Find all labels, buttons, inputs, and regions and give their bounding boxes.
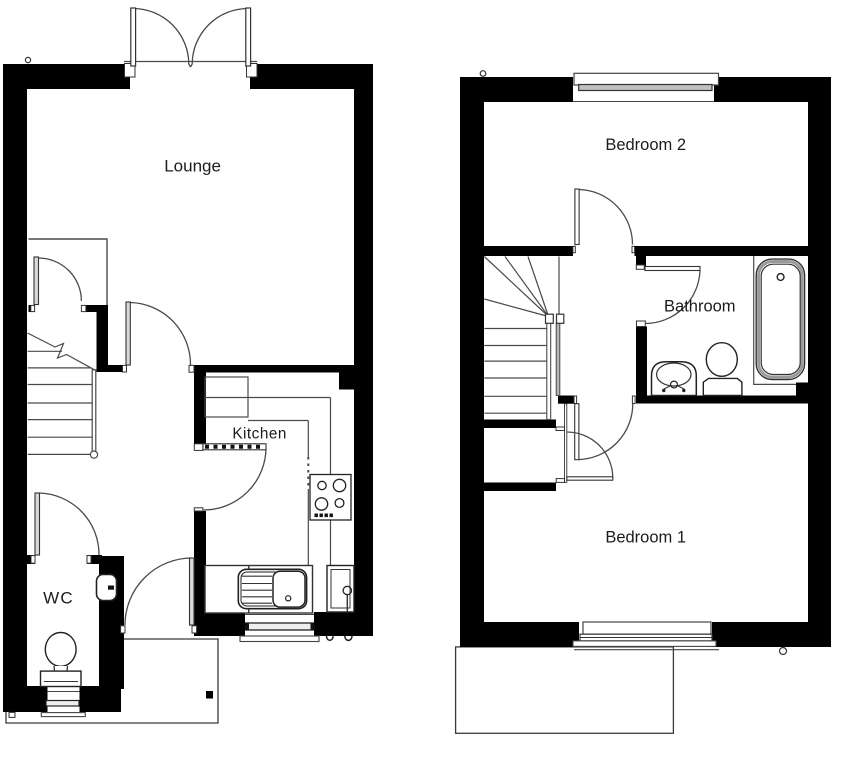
svg-text:Kitchen: Kitchen	[232, 426, 287, 443]
svg-text:Bedroom 1: Bedroom 1	[605, 529, 686, 547]
svg-text:Lounge: Lounge	[164, 156, 221, 175]
svg-text:Bathroom: Bathroom	[664, 297, 736, 315]
svg-text:WC: WC	[43, 589, 74, 608]
svg-text:Bedroom 2: Bedroom 2	[605, 136, 686, 154]
